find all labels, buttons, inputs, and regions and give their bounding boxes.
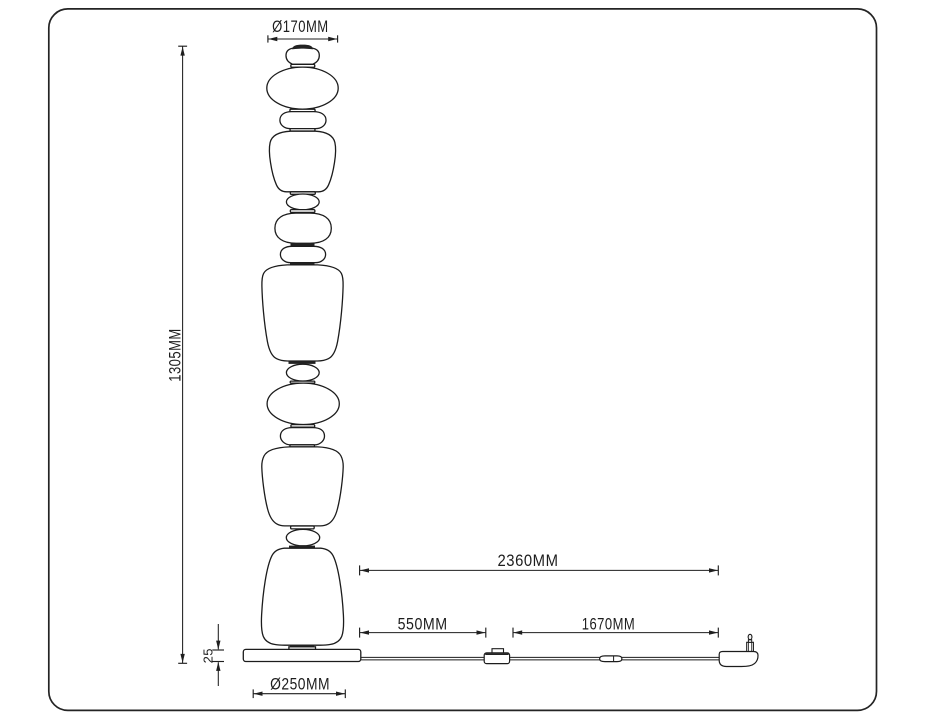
svg-text:1305MM: 1305MM	[167, 328, 185, 382]
svg-text:Ø170MM: Ø170MM	[272, 18, 329, 36]
svg-text:2360MM: 2360MM	[498, 552, 559, 570]
svg-text:1670MM: 1670MM	[582, 615, 636, 633]
svg-text:550MM: 550MM	[398, 615, 448, 633]
svg-text:25: 25	[201, 648, 216, 663]
svg-text:Ø250MM: Ø250MM	[270, 675, 330, 693]
